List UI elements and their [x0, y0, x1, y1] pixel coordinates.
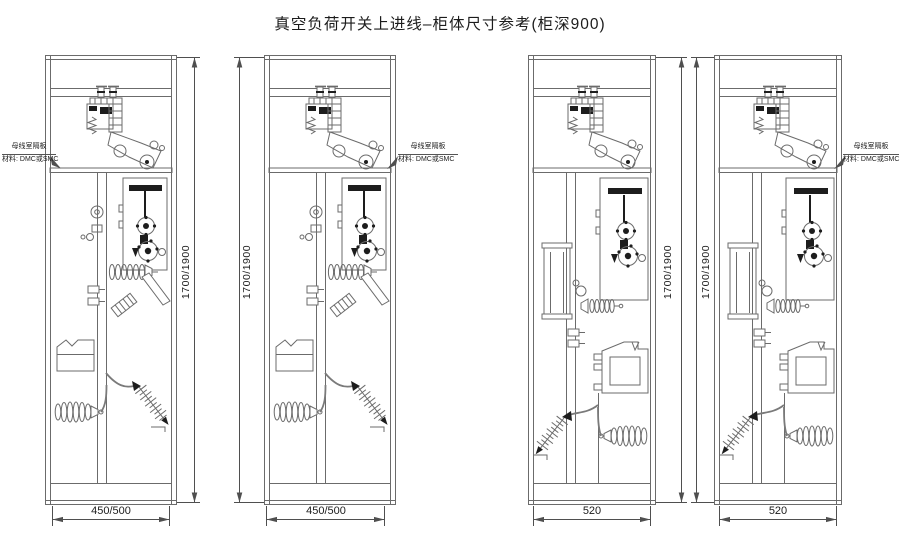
leader-arrow-2 — [387, 156, 398, 169]
material-label: 材料: DMC或SMC — [398, 155, 458, 166]
partition-annotation-2: 母线室隔板 材料: DMC或SMC — [398, 142, 458, 165]
height-dimension-cabinet-4: 1700/1900 — [700, 227, 712, 317]
cabinet-line-art — [0, 0, 900, 541]
cabinet-3-drawing — [528, 55, 656, 505]
partition-label: 母线室隔板 — [843, 142, 899, 155]
cabinet-4-drawing — [714, 55, 842, 505]
drawing-title: 真空负荷开关上进线–柜体尺寸参考(柜深900) — [0, 12, 880, 34]
cabinet-1-drawing — [45, 55, 177, 505]
partition-annotation-1: 母线室隔板 材料: DMC或SMC — [2, 142, 56, 165]
partition-label: 母线室隔板 — [398, 142, 458, 155]
partition-label: 母线室隔板 — [2, 142, 56, 155]
width-dimension-cabinet-3: 520 — [547, 505, 637, 517]
cabinet-2-drawing — [264, 55, 396, 505]
height-dimension-cabinet-3: 1700/1900 — [662, 227, 674, 317]
width-dimension-cabinet-4: 520 — [733, 505, 823, 517]
material-label: 材料: DMC或SMC — [2, 155, 56, 166]
material-label: 材料: DMC或SMC — [843, 155, 899, 166]
width-dimension-cabinet-2: 450/500 — [281, 505, 371, 517]
height-dimension-cabinet-2: 1700/1900 — [241, 227, 253, 317]
drawing-canvas: 真空负荷开关上进线–柜体尺寸参考(柜深900) 1700/1900 1700/1… — [0, 0, 900, 541]
dimension-lines — [53, 58, 837, 527]
width-dimension-cabinet-1: 450/500 — [66, 505, 156, 517]
partition-annotation-3: 母线室隔板 材料: DMC或SMC — [843, 142, 899, 165]
height-dimension-cabinet-1: 1700/1900 — [180, 227, 192, 317]
